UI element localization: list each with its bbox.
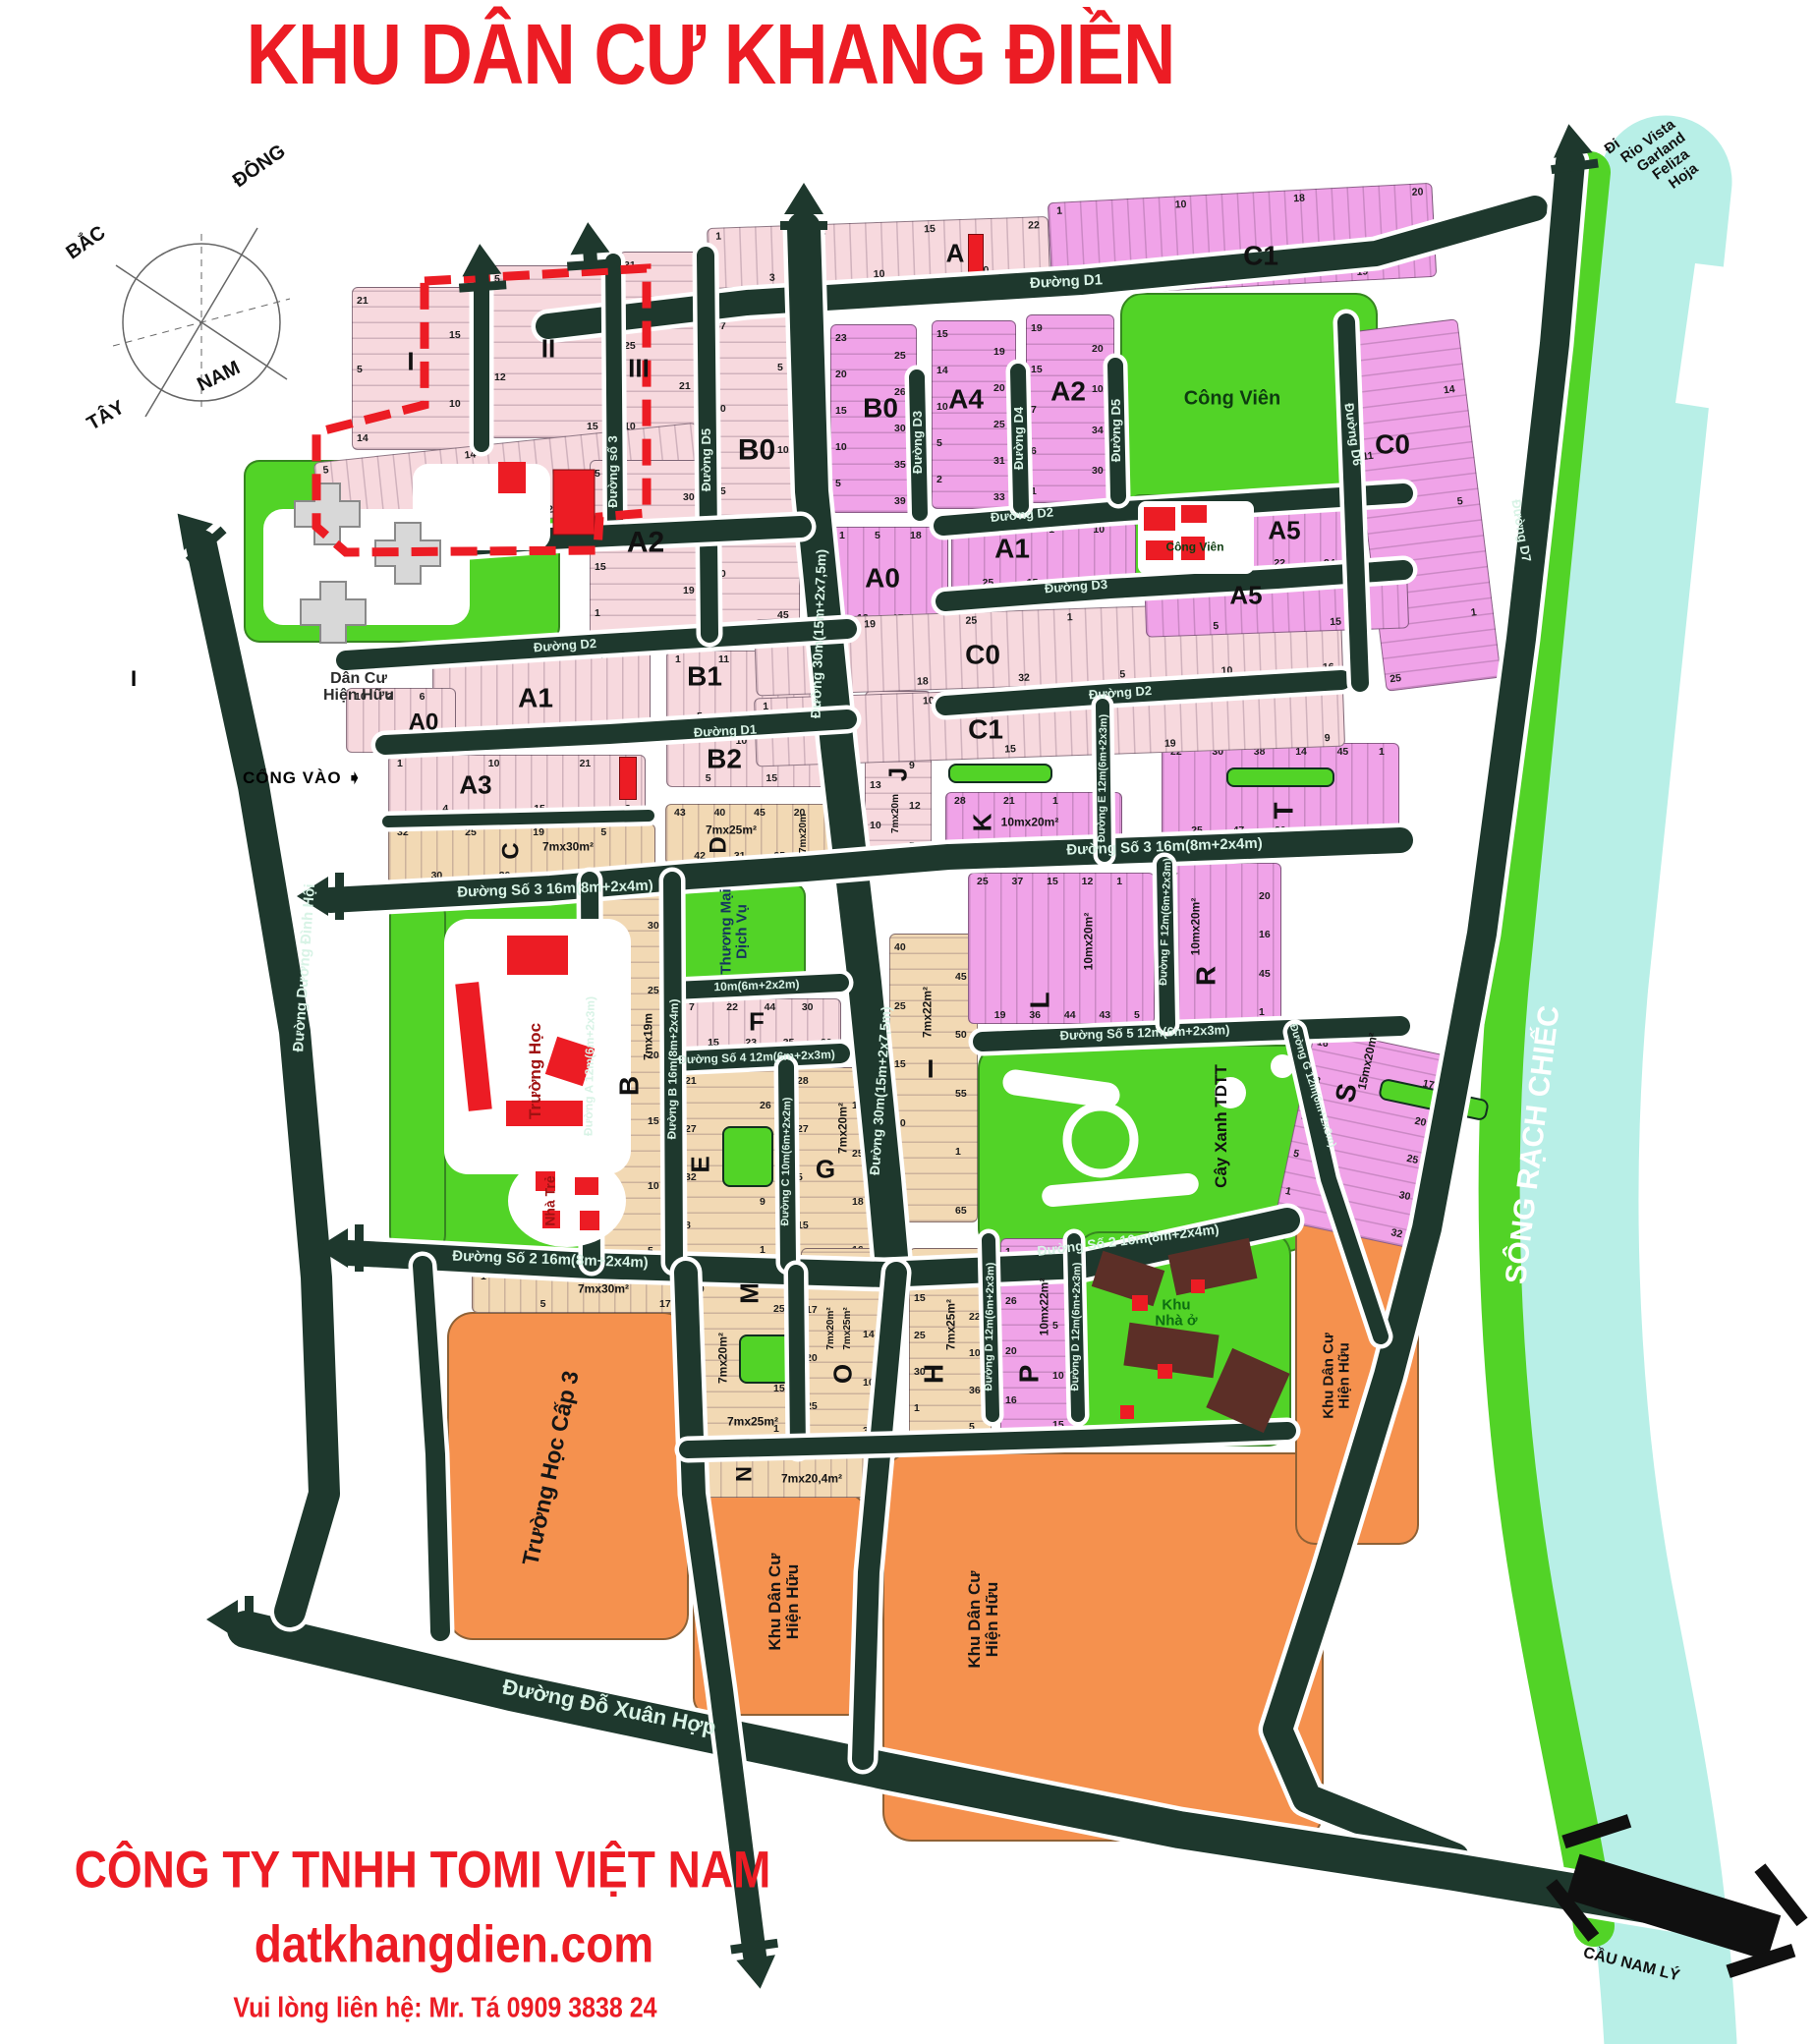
map-label: C0: [1375, 429, 1410, 458]
map-label: Đường D2: [534, 637, 597, 654]
map-label: I: [407, 348, 414, 374]
map-label: III: [628, 355, 650, 381]
entrance-label: CỔNG VÀO➧: [243, 768, 363, 788]
map-label: 10mx20m²: [1001, 817, 1059, 829]
map-label: I: [927, 1055, 934, 1082]
map-label: Đường D 12m(6m+2x3m): [984, 1262, 997, 1391]
map-label: C: [498, 842, 523, 859]
map-label: H: [919, 1364, 947, 1384]
map-label: 10mx20m²: [1190, 898, 1203, 956]
map-label: A2: [627, 527, 664, 558]
map-label: O: [829, 1364, 856, 1384]
left-edge-tick: I: [131, 666, 137, 692]
map-label: Đường số 3: [606, 435, 620, 508]
map-label: A5: [1229, 582, 1262, 608]
map-label: 10mx22m²: [1039, 1278, 1051, 1336]
map-label: A3: [459, 771, 491, 798]
map-label: J: [884, 767, 911, 781]
map-label: Đường D5: [700, 428, 713, 491]
map-label: 7mx22m²: [922, 987, 935, 1038]
map-label: F: [749, 1008, 765, 1035]
map-label: Trường Học: [527, 1023, 544, 1119]
map-label: B: [614, 1076, 643, 1096]
map-label: A0: [865, 563, 900, 592]
map-label: 7mx20m²: [837, 1103, 850, 1154]
map-label: Dân Cư Hiện Hữu: [323, 671, 394, 705]
map-label: Đường 30m(15m+2x7,5m): [809, 549, 829, 719]
map-label: R: [1191, 966, 1219, 986]
map-label: B0: [738, 434, 775, 466]
map-label: 7mx30m²: [578, 1283, 629, 1296]
map-label: A5: [1268, 517, 1300, 543]
khang-dien-map-poster: 2115510145111215311252110151937424145510…: [0, 0, 1815, 2044]
labels-layer: IIIIIIA2B0B1B2A1A0A3C7mx30m²D7mx25m²7mx2…: [0, 0, 1815, 2044]
map-label: Đường D5: [1109, 399, 1123, 462]
map-label: Đường D1: [1030, 272, 1104, 292]
map-label: C1: [968, 714, 1003, 743]
map-label: 7mx20m: [891, 794, 902, 833]
map-label: Đường Số 3 16m(8m+2x4m): [457, 879, 653, 901]
map-label: Đường D2: [1089, 684, 1153, 702]
footer-company: CÔNG TY TNHH TOMI VIỆT NAM: [75, 1839, 771, 1900]
map-label: K: [969, 814, 995, 832]
map-label: Khu Dân Cư Hiện Hữu: [1321, 1333, 1352, 1419]
map-label: Đường C 10m(6m+2x2m): [780, 1097, 794, 1225]
map-label: Đường D6: [1342, 402, 1364, 466]
map-label: C0: [965, 640, 1000, 668]
map-label: B0: [863, 393, 898, 422]
poster-title: KHU DÂN CƯ KHANG ĐIỀN: [247, 5, 1175, 103]
map-label: 7mx19m: [643, 1013, 655, 1060]
map-label: 7mx20m²: [717, 1333, 730, 1384]
map-label: 7mx25m²: [843, 1307, 854, 1349]
map-label: 10m(6m+2x2m): [713, 978, 799, 994]
map-label: Đường Số 4 12m(6m+2x3m): [678, 1049, 835, 1066]
map-label: Đường D3: [911, 411, 925, 474]
map-label: Đường F 12m(6m+2x3m): [1159, 858, 1174, 986]
map-label: Đường D1: [694, 723, 758, 740]
map-label: Đường A 12m(6m+2x3m): [582, 996, 596, 1136]
map-label: Đường D7: [1509, 498, 1534, 563]
map-label: Đường G 12m(6m+2x3m): [1286, 1023, 1337, 1150]
map-label: Đường D3: [1045, 578, 1108, 596]
map-label: 7mx25m²: [727, 1416, 778, 1429]
map-label: Cây Xanh TDTT: [1213, 1064, 1230, 1188]
map-label: Công Viên: [1184, 389, 1281, 410]
map-label: M: [736, 1282, 763, 1304]
map-label: L: [1025, 992, 1053, 1008]
map-label: E: [687, 1156, 713, 1172]
map-label: Đường E 12m(6m+2x3m): [1097, 714, 1110, 843]
map-label: Khu Dân Cư Hiện Hữu: [766, 1553, 802, 1650]
map-label: Đường D4: [1012, 407, 1026, 470]
map-label: 7mx25m²: [706, 824, 757, 837]
map-label: A: [946, 240, 965, 266]
map-label: Khu Nhà ở: [1155, 1297, 1197, 1329]
map-label: T: [1269, 802, 1297, 819]
map-label: B1: [687, 661, 722, 690]
entrance-text: CỔNG VÀO: [243, 768, 342, 787]
map-label: 7mx25m²: [945, 1299, 958, 1350]
map-label: SÔNG RẠCH CHIẾC: [1501, 1004, 1565, 1286]
footer-website: datkhangdien.com: [255, 1913, 653, 1974]
map-label: CẦU NAM LÝ: [1581, 1946, 1681, 1986]
map-label: Đường D2: [990, 505, 1053, 524]
map-label: Nhà Trẻ: [543, 1175, 558, 1225]
map-label: G: [816, 1156, 835, 1182]
map-label: A2: [1050, 376, 1086, 405]
map-label: P: [1014, 1365, 1043, 1384]
map-label: Thương Mại Dịch Vụ: [718, 888, 750, 974]
footer-contact: Vui lòng liên hệ: Mr. Tá 0909 3838 24: [233, 1992, 656, 2024]
map-label: 7mx30m²: [542, 841, 594, 854]
entrance-arrow-icon: ➧: [348, 768, 363, 788]
map-label: 15mx20m²: [1356, 1032, 1381, 1091]
map-label: Đường D 12m(6m+2x3m): [1070, 1262, 1084, 1391]
map-label: Đường Số 2 16m(8m+2x4m): [452, 1249, 649, 1272]
map-label: C1: [1243, 241, 1278, 269]
map-label: Đường Dương Đình Hội: [291, 883, 318, 1052]
map-label: 7mx20m: [799, 814, 810, 853]
map-label: A4: [948, 384, 984, 413]
map-label: Đường Đỗ Xuân Hợp: [500, 1675, 717, 1739]
map-label: 7mx20,4m²: [781, 1473, 842, 1486]
map-label: Đường Số 5 12m(6m+2x3m): [1059, 1023, 1229, 1043]
map-label: Đường B 16m(8m+2x4m): [665, 998, 680, 1139]
map-label: Công Viên: [1165, 541, 1223, 554]
map-label: Khu Dân Cư Hiện Hữu: [966, 1570, 1001, 1668]
map-label: D: [706, 836, 730, 853]
map-label: Đường 30m(15m+2x7,5m): [868, 1006, 894, 1176]
map-label: 10mx20m²: [1083, 913, 1096, 971]
map-label: B2: [707, 744, 742, 772]
map-label: Trường Học Cấp 3: [518, 1369, 583, 1567]
map-label: 7mx20m²: [826, 1307, 837, 1349]
map-label: Đường Số 2 16m(8m+2x4m): [1037, 1221, 1220, 1258]
map-label: A1: [994, 534, 1030, 562]
map-label: A0: [409, 710, 439, 734]
map-label: N: [732, 1466, 755, 1482]
map-label: II: [541, 335, 555, 362]
map-label: A1: [518, 683, 553, 711]
